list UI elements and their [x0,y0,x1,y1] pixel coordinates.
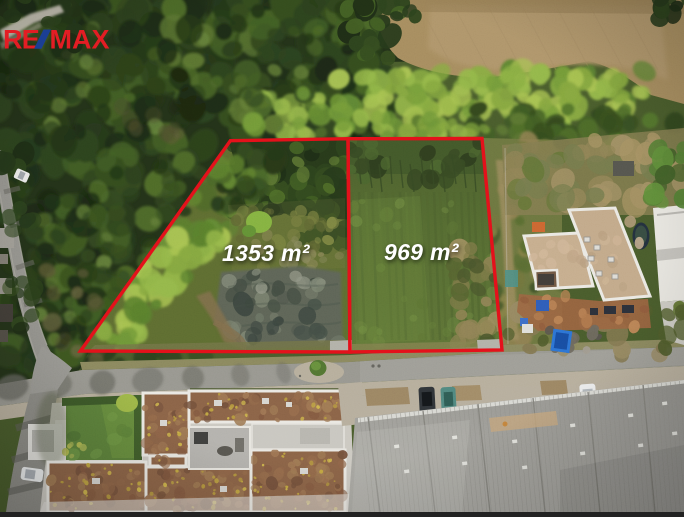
svg-text:969 m²: 969 m² [384,239,460,265]
svg-text:RE: RE [3,25,39,55]
svg-text:1353 m²: 1353 m² [222,240,311,266]
svg-text:MAX: MAX [50,25,110,55]
